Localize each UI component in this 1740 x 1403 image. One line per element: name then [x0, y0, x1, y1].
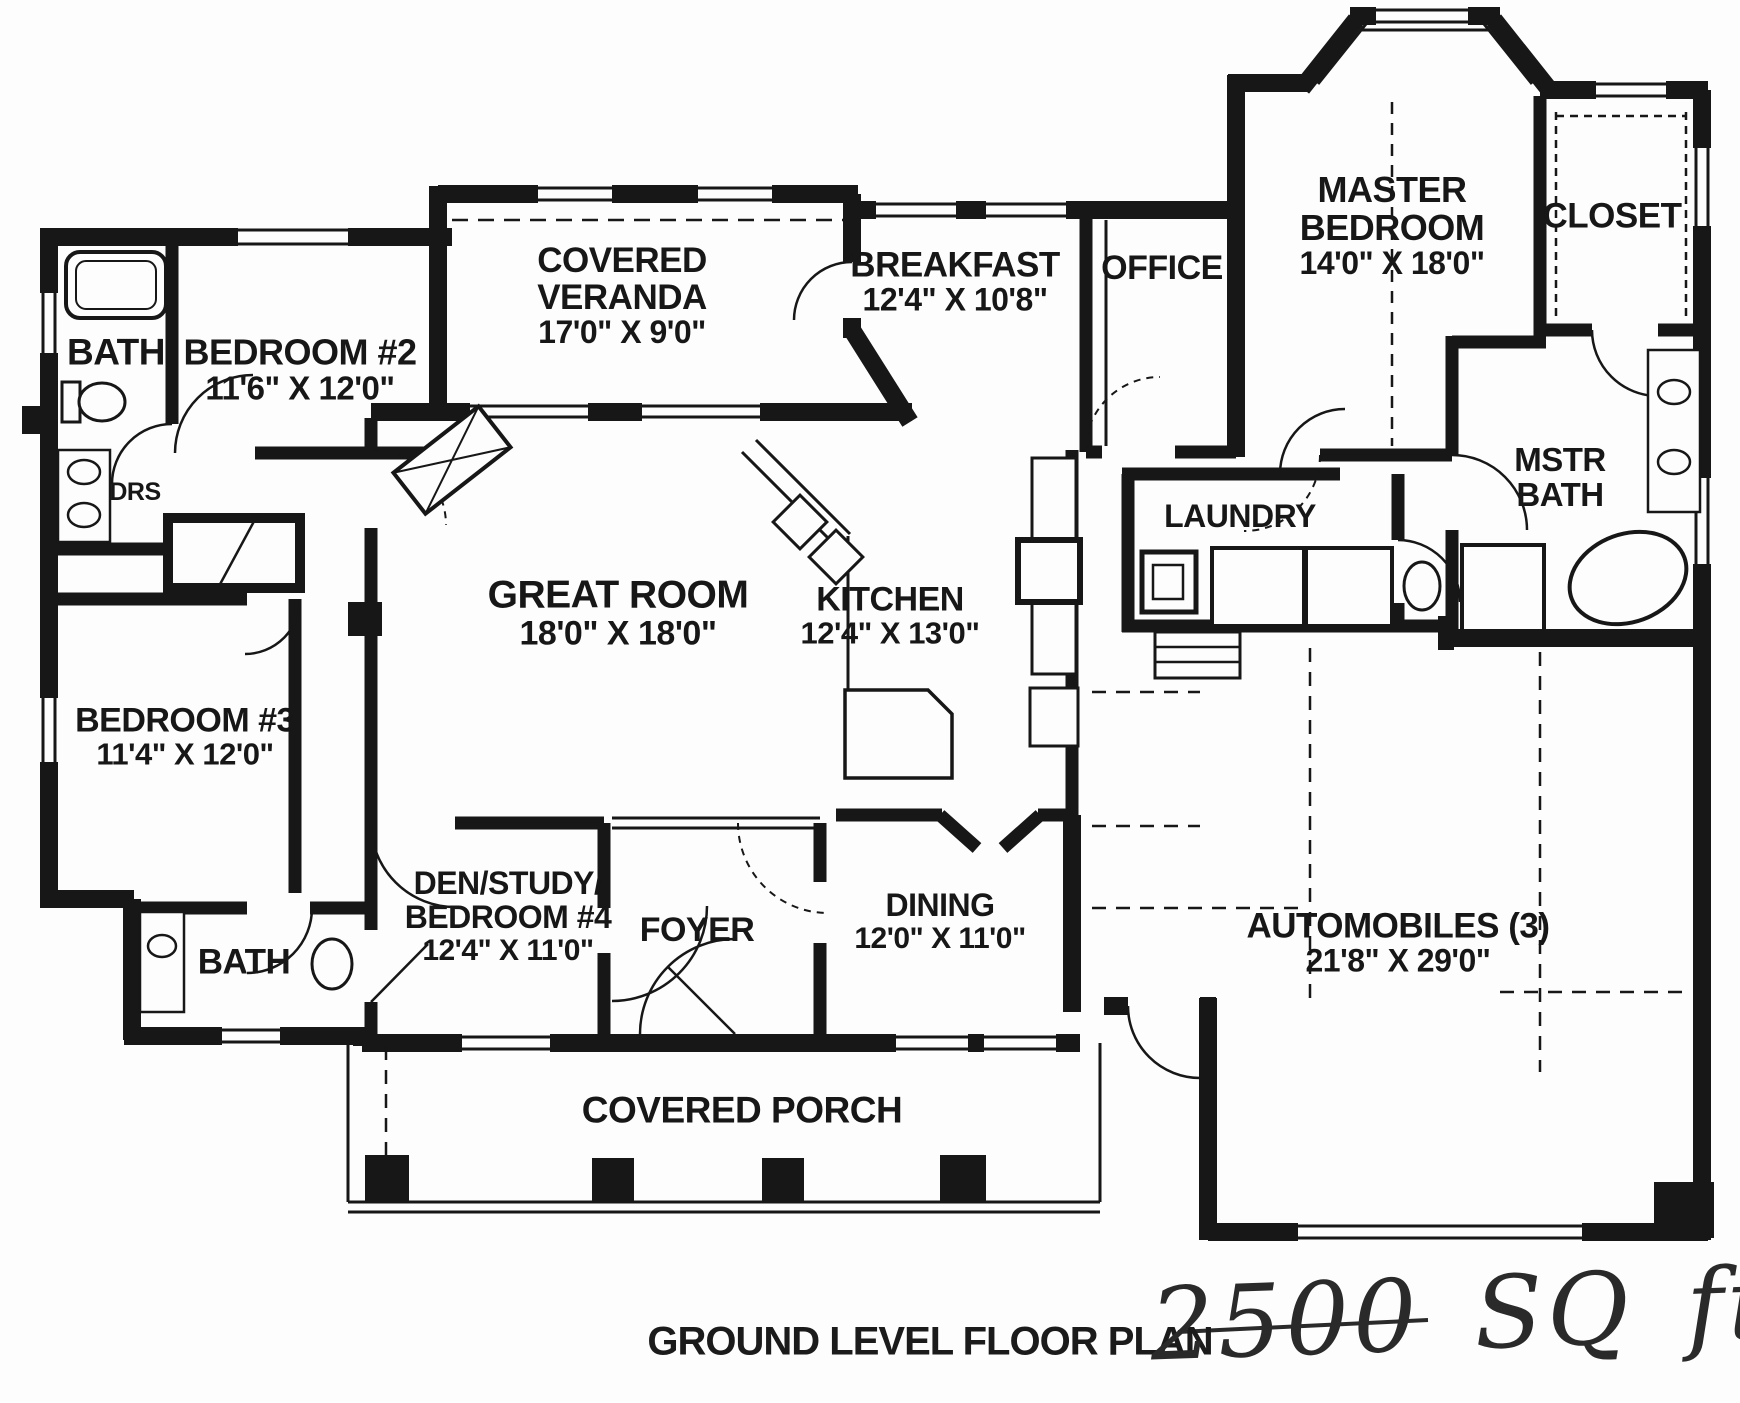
room-label-bedroom2: BEDROOM #2 11'6" X 12'0"	[183, 333, 416, 406]
room-name-line1: COVERED	[537, 242, 707, 279]
plan-caption: GROUND LEVEL FLOOR PLAN	[647, 1320, 1212, 1365]
garage-door	[1298, 1221, 1582, 1243]
room-name-line2: BEDROOM #4	[405, 901, 612, 935]
window-right-closet	[1692, 148, 1712, 226]
dryer	[1306, 548, 1392, 626]
room-name: KITCHEN	[801, 582, 980, 618]
room-label-veranda: COVERED VERANDA 17'0" X 9'0"	[537, 242, 707, 350]
mstr-tub	[1557, 516, 1700, 640]
bath-top-door-arc	[112, 424, 172, 484]
window-breakfast-2	[986, 200, 1066, 219]
mstr-toilet	[1404, 562, 1440, 610]
room-label-bedroom3: BEDROOM #3 11'4" X 12'0"	[75, 703, 295, 772]
drs-sink-1	[68, 460, 100, 484]
porch-pillar-4	[940, 1155, 986, 1201]
room-label-great-room: GREAT ROOM 18'0" X 18'0"	[488, 574, 749, 651]
room-label-bath-bottom: BATH	[198, 943, 291, 980]
room-name: OFFICE	[1101, 249, 1223, 287]
room-dims: 12'4" X 10'8"	[850, 284, 1059, 318]
room-dims: 12'4" X 11'0"	[405, 935, 612, 967]
room-name: AUTOMOBILES (3)	[1247, 908, 1550, 945]
room-label-laundry: LAUNDRY	[1164, 500, 1316, 534]
office-door-arc	[1085, 377, 1160, 452]
kitchen-oven	[1018, 540, 1080, 602]
room-name-line2: BATH	[1514, 478, 1606, 513]
window-closet-top	[1596, 80, 1666, 99]
window-bedroom2-top	[238, 226, 348, 247]
window-veranda-top-1	[538, 184, 612, 203]
room-name: DINING	[854, 889, 1025, 923]
washer	[1212, 548, 1304, 626]
cooktop-2	[809, 530, 863, 584]
garage-entry-door-arc	[1128, 1006, 1200, 1078]
room-label-kitchen: KITCHEN 12'4" X 13'0"	[801, 582, 980, 651]
room-label-bath-top: BATH	[67, 332, 165, 371]
room-name: CLOSET	[1543, 196, 1682, 235]
bath2-sink	[148, 935, 176, 957]
refrigerator	[1030, 688, 1078, 746]
window-dining-front-2	[984, 1033, 1056, 1052]
drs-sink-2	[68, 503, 100, 527]
hall-closet	[168, 518, 300, 588]
bathtub-inner	[76, 261, 156, 309]
room-name: BATH	[198, 942, 291, 981]
room-label-office: OFFICE	[1101, 250, 1223, 286]
room-dims: 12'4" X 13'0"	[801, 618, 980, 651]
room-dims: 21'8" X 29'0"	[1247, 945, 1550, 979]
room-name: COVERED PORCH	[582, 1089, 902, 1130]
window-bath-front	[222, 1026, 280, 1045]
mstr-sink-1	[1658, 380, 1690, 404]
room-name-line2: VERANDA	[537, 279, 707, 316]
left-wall-jog	[22, 406, 42, 434]
room-dims: 12'0" X 11'0"	[854, 923, 1025, 955]
greatroom-foyer-opening	[612, 818, 820, 828]
room-name: BATH	[67, 331, 165, 372]
bath2-toilet	[312, 939, 352, 989]
room-name: BEDROOM #2	[183, 333, 416, 371]
garage-corner-pier	[1654, 1182, 1714, 1238]
room-dims: 14'0" X 18'0"	[1300, 247, 1485, 281]
mstr-sink-2	[1658, 450, 1690, 474]
room-name: BREAKFAST	[850, 247, 1059, 284]
label-drs: DRS	[109, 479, 160, 506]
kitchen-island	[845, 690, 952, 778]
window-veranda-top-2	[698, 184, 772, 203]
room-label-dining: DINING 12'0" X 11'0"	[854, 889, 1025, 955]
porch-pillar-1	[365, 1155, 409, 1201]
garage-steps	[1155, 632, 1240, 678]
laundry-hall-door-arc	[1280, 409, 1345, 474]
room-name: DRS	[109, 478, 160, 506]
laundry-sink	[1153, 565, 1183, 599]
window-left-2	[39, 698, 59, 762]
room-label-porch: COVERED PORCH	[582, 1090, 902, 1129]
toilet-bowl	[79, 383, 125, 421]
window-den-front	[462, 1033, 550, 1052]
floor-plan-scan: BATH BEDROOM #2 11'6" X 12'0" DRS COVERE…	[0, 0, 1740, 1403]
front-door-arc	[640, 939, 735, 1034]
porch-pillar-2	[592, 1158, 634, 1202]
room-dims: 18'0" X 18'0"	[488, 616, 749, 652]
mstr-shower	[1462, 545, 1544, 631]
room-label-garage: AUTOMOBILES (3) 21'8" X 29'0"	[1247, 908, 1550, 979]
room-name: LAUNDRY	[1164, 498, 1316, 534]
room-name: GREAT ROOM	[488, 574, 749, 615]
window-greatroom-2	[642, 402, 760, 421]
toilet-tank	[62, 382, 80, 422]
mstr-vanity	[1648, 350, 1700, 512]
room-name-line1: MSTR	[1514, 443, 1606, 478]
window-left-1	[39, 293, 59, 353]
room-label-mstr-bath: MSTR BATH	[1514, 443, 1606, 513]
window-bay-top	[1376, 6, 1468, 25]
room-label-den: DEN/STUDY/ BEDROOM #4 12'4" X 11'0"	[405, 867, 612, 967]
bath2-vanity	[140, 912, 184, 1012]
room-dims: 17'0" X 9'0"	[537, 316, 707, 350]
window-dining-front-1	[896, 1033, 968, 1052]
room-name-line1: DEN/STUDY/	[405, 867, 612, 901]
room-dims: 11'4" X 12'0"	[75, 739, 295, 772]
veranda-breakfast-door-arc	[794, 262, 852, 320]
room-label-foyer: FOYER	[640, 912, 755, 948]
room-name: BEDROOM #3	[75, 703, 295, 739]
window-breakfast-1	[876, 200, 956, 219]
room-name-line2: BEDROOM	[1300, 209, 1485, 247]
hall-closet-door-leaf	[218, 514, 258, 588]
room-name: FOYER	[640, 911, 755, 949]
handwritten-square-footage: 2500 SQ ft.	[1148, 1244, 1740, 1384]
porch-pillar-3	[762, 1158, 804, 1202]
room-label-closet: CLOSET	[1543, 197, 1682, 234]
room-label-master: MASTER BEDROOM 14'0" X 18'0"	[1300, 171, 1485, 281]
room-dims: 11'6" X 12'0"	[183, 372, 416, 407]
room-label-breakfast: BREAKFAST 12'4" X 10'8"	[850, 247, 1059, 318]
room-name-line1: MASTER	[1300, 171, 1485, 209]
